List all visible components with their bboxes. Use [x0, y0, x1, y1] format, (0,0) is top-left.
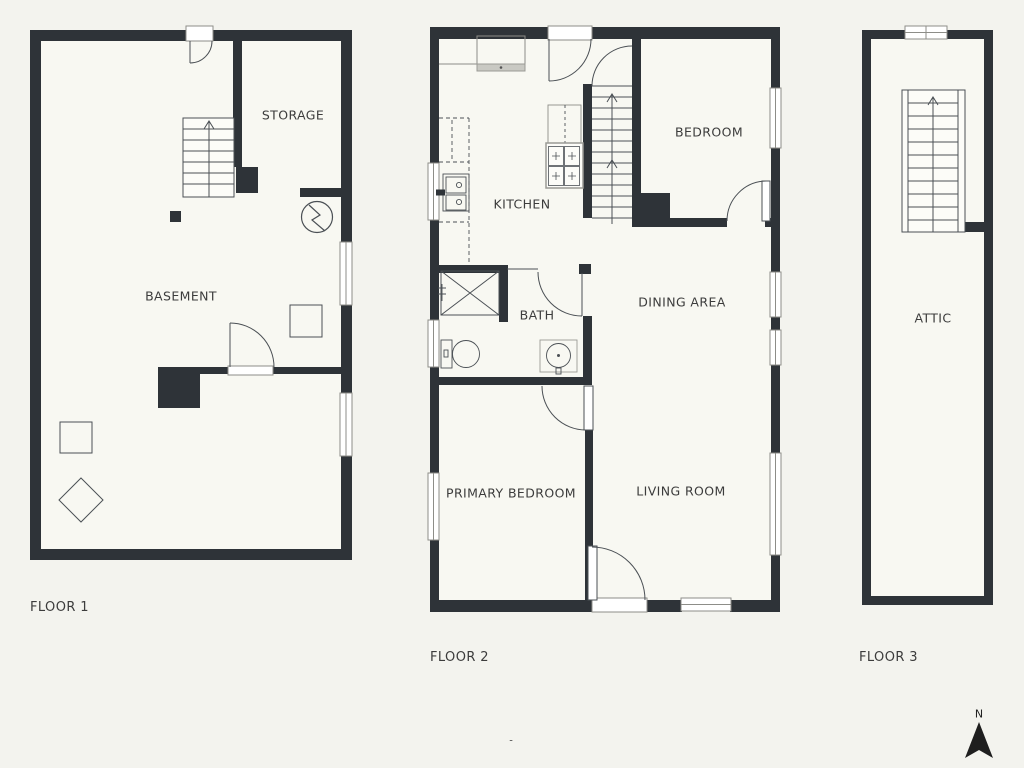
room-label-bedroom: BEDROOM	[675, 125, 743, 140]
room-label-storage: STORAGE	[262, 108, 324, 123]
floor1-label: FLOOR 1	[30, 600, 89, 615]
page-dash: -	[509, 736, 513, 747]
wall-corner-block	[236, 167, 258, 193]
wall-segment	[771, 27, 780, 88]
wall-segment	[30, 30, 186, 41]
wall-segment	[771, 317, 780, 330]
wall-segment	[341, 30, 352, 242]
room-label-dining-area: DINING AREA	[638, 295, 725, 310]
room-label-living-room: LIVING ROOM	[636, 484, 725, 499]
wall-segment	[499, 265, 508, 322]
wall-segment	[730, 600, 780, 612]
wall-segment	[341, 456, 352, 560]
room-label-bath: BATH	[520, 308, 555, 323]
floor2-room-area	[439, 39, 771, 600]
wall-segment	[771, 365, 780, 453]
wall-segment	[430, 27, 548, 39]
wall-segment	[273, 367, 341, 374]
floorplan-page: STORAGE BASEMENT FLOOR 1 KITCHEN BEDROOM…	[0, 0, 1024, 768]
wall-segment	[583, 84, 592, 218]
wall-segment	[862, 30, 871, 605]
wall-segment	[213, 30, 352, 41]
wall-segment	[640, 218, 727, 227]
wall-segment	[435, 377, 586, 385]
chimney-block	[637, 193, 670, 218]
wall-segment	[200, 367, 228, 374]
north-arrow-icon	[965, 722, 993, 758]
wall-segment	[30, 30, 41, 560]
floor2-plan	[428, 26, 781, 612]
north-label: N	[975, 708, 983, 721]
wall-segment	[771, 148, 780, 272]
wall-segment	[592, 27, 780, 39]
staircase	[183, 118, 234, 197]
room-label-kitchen: KITCHEN	[494, 197, 551, 212]
wall-segment	[30, 549, 352, 560]
door-threshold	[548, 26, 592, 40]
room-label-attic: ATTIC	[914, 311, 951, 326]
floor2-label: FLOOR 2	[430, 650, 489, 665]
wall-segment	[430, 27, 439, 163]
wall-segment	[647, 600, 682, 612]
floor3-window	[905, 26, 947, 39]
wall-segment	[583, 316, 592, 385]
floor3-label: FLOOR 3	[859, 650, 918, 665]
door-threshold	[228, 366, 273, 375]
room-label-basement: BASEMENT	[145, 289, 217, 304]
wall-segment	[341, 305, 352, 393]
chimney-block	[158, 367, 200, 408]
staircase	[902, 90, 965, 232]
wall-segment	[579, 264, 591, 274]
post-block	[170, 211, 181, 222]
wall-segment	[984, 30, 993, 605]
door-threshold	[186, 26, 213, 41]
wall-segment	[430, 600, 592, 612]
wall-segment	[435, 265, 507, 273]
wall-segment	[300, 188, 341, 197]
door-threshold	[592, 598, 647, 612]
room-label-primary-bedroom: PRIMARY BEDROOM	[446, 486, 576, 501]
wall-segment	[862, 596, 993, 605]
